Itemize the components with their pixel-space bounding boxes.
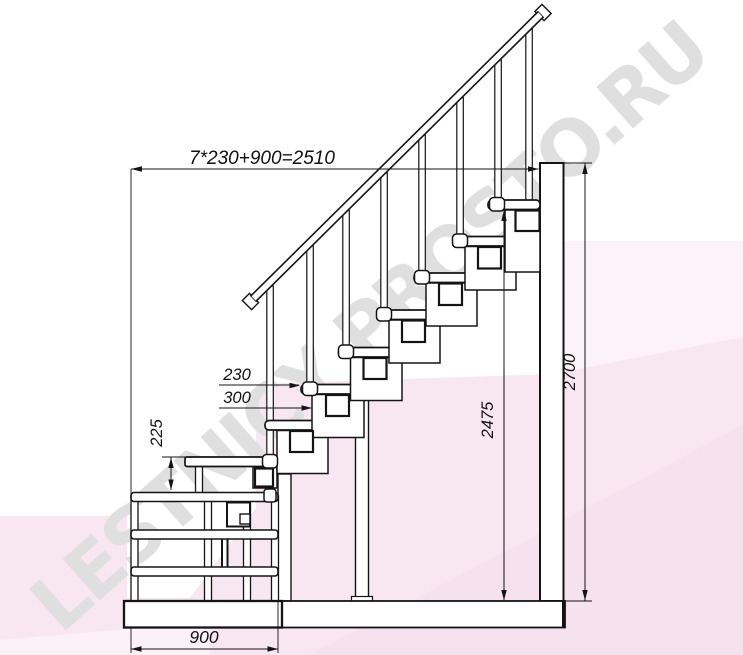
dim-total-run-label: 7*230+900=2510 xyxy=(189,148,335,169)
baluster xyxy=(381,173,388,315)
platform-mid-bar xyxy=(131,530,278,539)
platform-top-bar xyxy=(131,493,278,502)
module-block xyxy=(439,284,462,306)
staircase-drawing-canvas: LESTNICY PROSTO.RU xyxy=(0,0,743,655)
baluster-collar xyxy=(339,345,354,359)
dim-first-rise-label: 225 xyxy=(148,418,166,447)
dim-platform-depth-label: 900 xyxy=(189,627,218,647)
module-block-detail xyxy=(240,514,250,524)
baluster xyxy=(495,60,502,205)
baluster xyxy=(343,211,350,352)
upper-floor-column xyxy=(540,163,564,601)
module-block xyxy=(516,211,540,232)
floor-slab xyxy=(124,601,565,628)
baluster xyxy=(526,28,533,202)
first-step-post xyxy=(196,464,203,494)
platform-short-post xyxy=(222,535,228,568)
module-block xyxy=(290,431,313,452)
platform-post xyxy=(272,496,279,601)
baluster-collar xyxy=(415,271,430,285)
dim-total-run: 7*230+900=2510 xyxy=(131,148,539,172)
baluster-collar xyxy=(490,198,505,212)
baluster xyxy=(307,246,314,389)
platform-low-bar xyxy=(131,567,278,576)
baluster-collar xyxy=(377,308,392,322)
baluster xyxy=(419,135,426,278)
dim-going-label: 230 xyxy=(222,366,251,384)
staircase-elevation-svg: LESTNICY PROSTO.RU xyxy=(0,0,743,655)
module-block xyxy=(478,247,501,269)
baluster-collar xyxy=(263,455,278,469)
platform-post xyxy=(205,496,212,601)
module-spine xyxy=(278,474,291,601)
platform-bar-knob xyxy=(264,489,276,502)
dim-tread-depth-label: 300 xyxy=(223,389,251,407)
baluster-collar xyxy=(303,382,318,396)
baluster xyxy=(267,286,274,463)
floor-base xyxy=(124,601,565,628)
module-block xyxy=(364,358,387,379)
dim-total-height-label: 2700 xyxy=(561,353,579,392)
dim-height-top-tread-label: 2475 xyxy=(479,401,497,440)
platform-post xyxy=(131,496,138,601)
module-block xyxy=(402,321,425,343)
module-block xyxy=(326,395,349,416)
arrow-left xyxy=(131,166,142,171)
baluster-collar xyxy=(453,234,468,248)
module-block xyxy=(255,469,273,487)
